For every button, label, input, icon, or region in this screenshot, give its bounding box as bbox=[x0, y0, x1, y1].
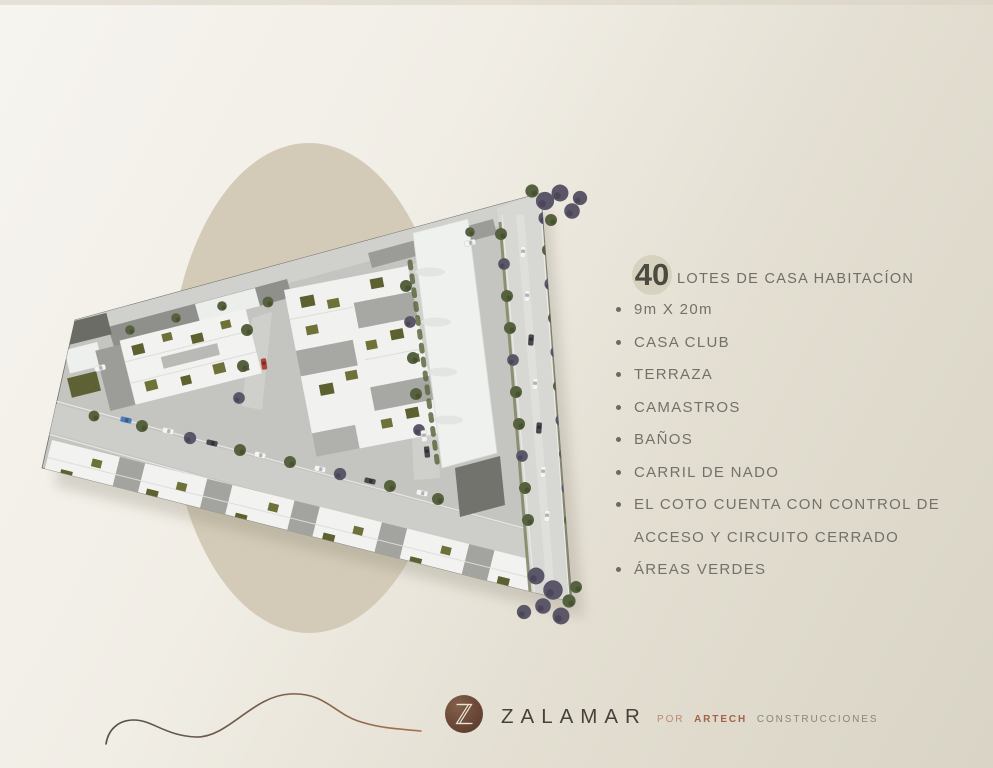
feature-item: BAÑOS bbox=[612, 424, 956, 457]
bullet-icon bbox=[616, 340, 621, 345]
bullet-icon bbox=[616, 502, 621, 507]
feature-item: 9m X 20m bbox=[612, 294, 956, 327]
zalamar-logo bbox=[445, 695, 483, 733]
byline-brand: ARTECH bbox=[694, 714, 747, 725]
bullet-icon bbox=[616, 437, 621, 442]
bullet-icon bbox=[616, 567, 621, 572]
headline-label: LOTES DE CASA HABITACÍON bbox=[677, 271, 914, 295]
feature-list: 9m X 20m CASA CLUB TERRAZA CAMASTROS BAÑ… bbox=[612, 294, 956, 587]
feature-item: TERRAZA bbox=[612, 359, 956, 392]
feature-item: ÁREAS VERDES bbox=[612, 554, 956, 587]
wave-line-decoration bbox=[106, 694, 421, 744]
lot-count: 40 bbox=[635, 257, 669, 293]
byline-prefix: POR bbox=[657, 714, 684, 725]
feature-item: CARRIL DE NADO bbox=[612, 457, 956, 490]
bullet-icon bbox=[616, 405, 621, 410]
logo-z-monogram-icon bbox=[451, 701, 477, 727]
lot-count-badge: 40 bbox=[632, 255, 672, 295]
byline-suffix: CONSTRUCCIONES bbox=[757, 714, 879, 725]
bullet-icon bbox=[616, 307, 621, 312]
byline: POR ARTECH CONSTRUCCIONES bbox=[657, 713, 878, 726]
feature-item: CASA CLUB bbox=[612, 327, 956, 360]
feature-item: EL COTO CUENTA CON CONTROL DE ACCESO Y C… bbox=[612, 489, 956, 554]
flyer-page: 40 LOTES DE CASA HABITACÍON 9m X 20m CAS… bbox=[0, 0, 993, 768]
brand-name: ZALAMAR bbox=[501, 704, 647, 730]
feature-item: CAMASTROS bbox=[612, 392, 956, 425]
headline: 40 LOTES DE CASA HABITACÍON bbox=[632, 255, 914, 295]
bullet-icon bbox=[616, 372, 621, 377]
bullet-icon bbox=[616, 470, 621, 475]
